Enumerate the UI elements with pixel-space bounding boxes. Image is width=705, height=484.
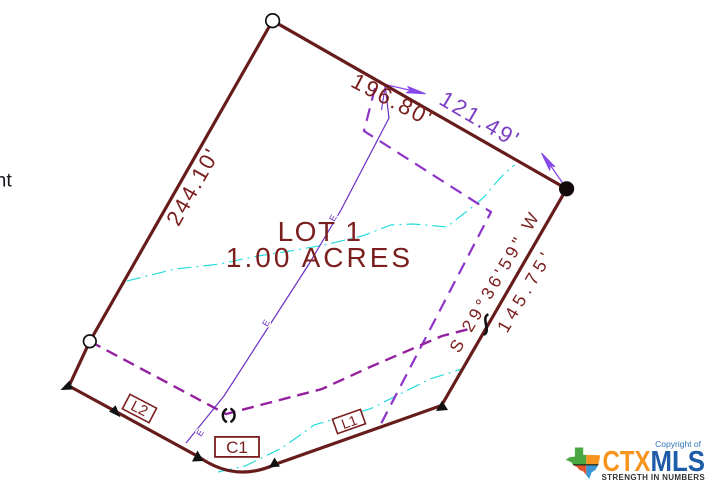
- svg-text:1.00 ACRES: 1.00 ACRES: [226, 242, 413, 273]
- svg-text:C1: C1: [226, 438, 248, 457]
- svg-text:nt: nt: [0, 170, 12, 192]
- svg-text:STRENGTH IN NUMBERS: STRENGTH IN NUMBERS: [602, 473, 705, 482]
